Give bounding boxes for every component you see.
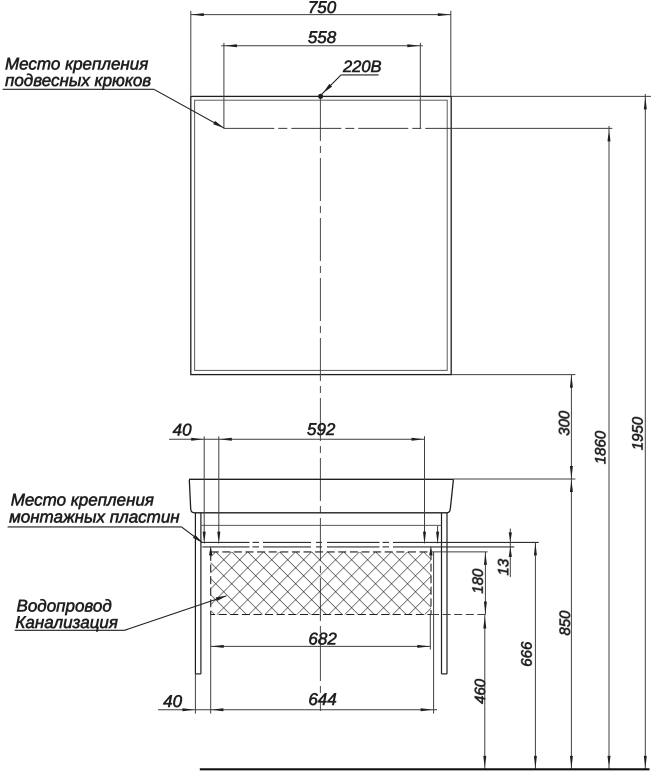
svg-text:460: 460 xyxy=(472,678,489,704)
svg-text:644: 644 xyxy=(308,690,336,709)
svg-text:40: 40 xyxy=(163,692,182,711)
svg-text:Канализация: Канализация xyxy=(15,613,118,632)
svg-text:300: 300 xyxy=(556,410,573,436)
svg-text:180: 180 xyxy=(470,568,487,594)
svg-text:13: 13 xyxy=(496,558,513,575)
svg-text:1950: 1950 xyxy=(630,416,647,450)
svg-text:220В: 220В xyxy=(342,58,382,76)
svg-text:монтажных пластин: монтажных пластин xyxy=(9,508,180,527)
svg-text:40: 40 xyxy=(173,420,192,439)
svg-text:850: 850 xyxy=(557,610,574,636)
svg-text:666: 666 xyxy=(519,641,536,667)
svg-text:592: 592 xyxy=(307,420,336,439)
svg-text:682: 682 xyxy=(308,630,337,649)
svg-text:1860: 1860 xyxy=(593,430,610,464)
svg-text:750: 750 xyxy=(308,0,337,17)
svg-text:подвесных крюков: подвесных крюков xyxy=(5,71,151,90)
svg-text:558: 558 xyxy=(308,28,337,47)
